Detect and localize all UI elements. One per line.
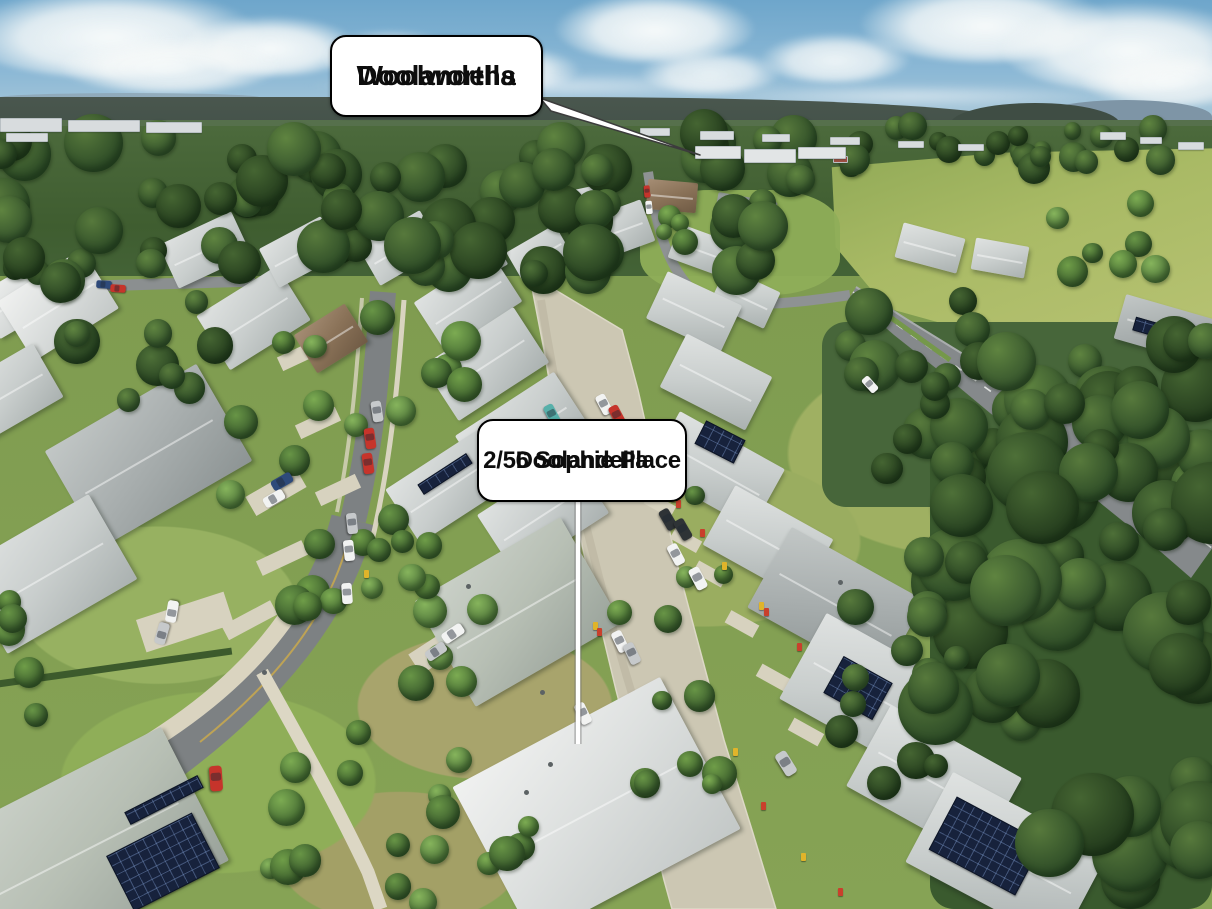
distant-building [1140, 137, 1162, 144]
shopping-centre-building [744, 149, 796, 163]
shopping-centre-building [798, 147, 846, 159]
distant-building [146, 122, 202, 133]
distant-building [898, 141, 924, 148]
shopping-centre-building [695, 146, 741, 159]
woolworths-callout: Woolworths Doolandella [330, 35, 543, 117]
distant-building [68, 120, 140, 132]
distant-building [830, 137, 860, 145]
property-callout: 2/56 Sophie Place Doolandella [477, 419, 687, 502]
distant-building [1100, 132, 1126, 140]
distant-building [640, 128, 670, 136]
distant-building [958, 144, 984, 151]
distant-building [762, 134, 790, 142]
distant-building [6, 133, 48, 142]
aerial-photo: Woolworths Doolandella 2/56 Sophie Place… [0, 0, 1212, 909]
distant-building [1178, 142, 1204, 150]
property-callout-line2: Doolandella [516, 445, 649, 476]
distant-building [0, 118, 62, 132]
woolworths-callout-line2: Doolandella [357, 59, 516, 93]
distant-building [700, 131, 734, 140]
